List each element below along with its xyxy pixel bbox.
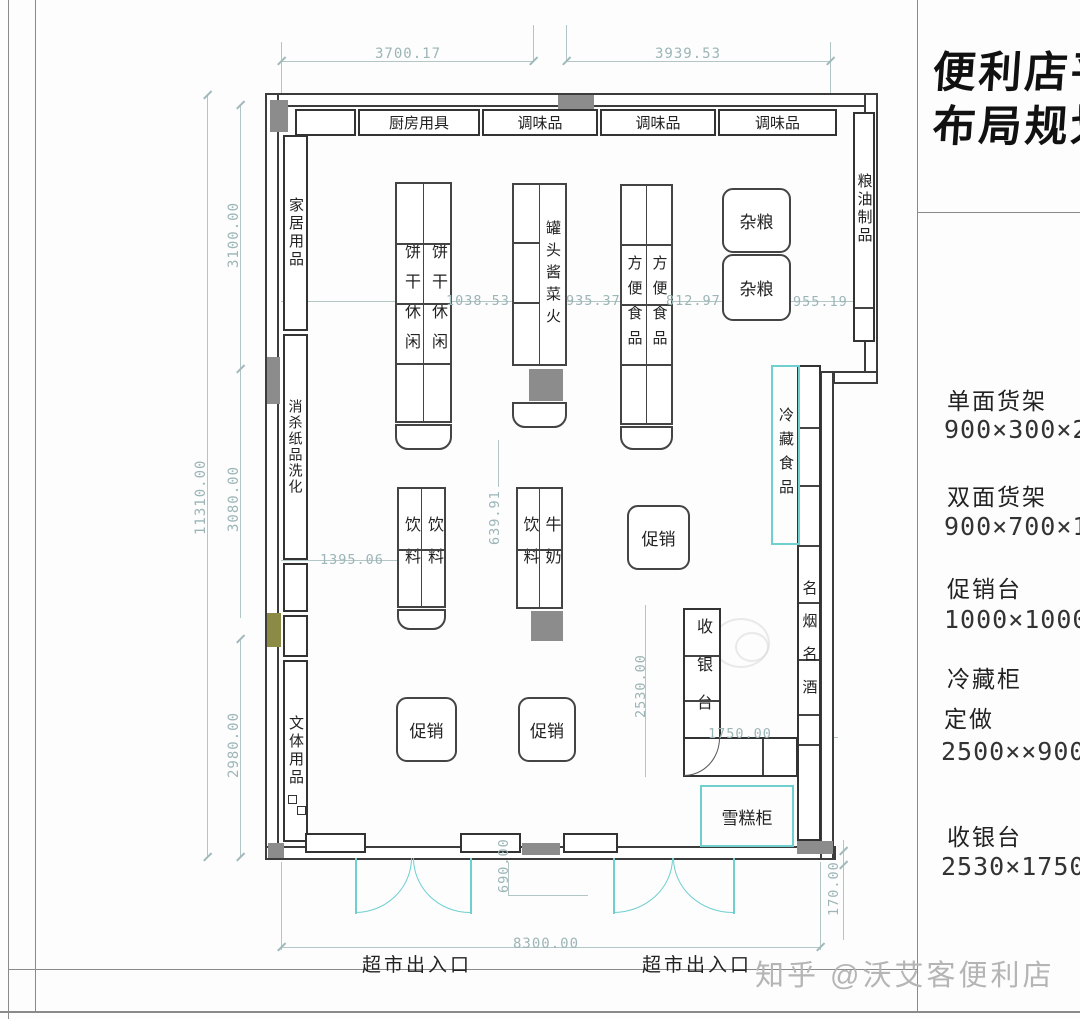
wall-block [558, 95, 594, 109]
gondola-endcap [395, 424, 452, 450]
door-swing-arc [613, 858, 673, 913]
shelf-divider [762, 739, 764, 775]
bottom-cabinet [305, 833, 366, 853]
shelf-label: 罐头酱菜火 [545, 220, 560, 330]
gondola-canned: 罐头酱菜火 [512, 183, 567, 366]
legend-item-note: 定做 [944, 700, 994, 734]
zone-ice-cream: 雪糕柜 [700, 785, 794, 847]
shelf-divider [685, 655, 719, 657]
shelf-label: 粮油制品 [857, 173, 872, 245]
top-shelf-condiments-3: 调味品 [718, 109, 837, 136]
gondola-column: 饮料 [421, 489, 444, 606]
shelf-household: 家居用品 [283, 135, 308, 331]
watermark-logo [735, 632, 769, 662]
top-shelf-condiments-1: 调味品 [482, 109, 598, 136]
top-shelf-condiments-2: 调味品 [600, 109, 716, 136]
shelf-empty [283, 563, 308, 612]
top-shelf-empty [295, 109, 356, 136]
dim-ext [281, 862, 282, 950]
legend-item-size: 900×300×20 [944, 415, 1080, 444]
shelf-divider [799, 427, 819, 429]
shelf-divider [397, 303, 450, 305]
shelf-divider [399, 549, 444, 551]
legend-item-size: 900×700×16 [944, 512, 1080, 541]
shelf-label: 厨房用具 [389, 112, 449, 133]
shelf-label: 冷藏食品 [778, 407, 793, 503]
dim-ext [281, 42, 282, 97]
shelf-divider [799, 485, 819, 487]
shelf-divider [622, 364, 671, 366]
table-grains-1: 杂粮 [722, 188, 791, 253]
wall-block [268, 843, 284, 858]
cashier-label: 收银台 [694, 618, 710, 732]
gondola-endcap [512, 402, 567, 428]
dim-left-seg3: 2980.00 [226, 712, 242, 778]
table-promo-3: 促销 [627, 505, 690, 570]
shelf-divider [622, 244, 671, 246]
shelf-empty [283, 615, 308, 657]
legend-item-name: 双面货架 [947, 478, 1047, 512]
dim-aisle4: 955.19 [793, 294, 848, 310]
shelf-divider [799, 744, 819, 746]
wall-step [833, 371, 878, 384]
shelf-divider [514, 242, 540, 244]
table-label: 促销 [530, 717, 564, 742]
dim-left-seg2: 3080.00 [226, 466, 242, 532]
bottom-cabinet [563, 833, 618, 853]
dim-cashier-width: 1750.00 [708, 726, 772, 742]
sheet-border-bottom [0, 1011, 1080, 1013]
shelf-divider [397, 363, 450, 365]
dim-cashier-depth: 2530.00 [633, 654, 649, 718]
dim-bottom-width: 8300.00 [513, 936, 579, 952]
dim-right-step: 170.00 [826, 861, 842, 916]
table-label: 杂粮 [740, 208, 774, 233]
dim-ext [820, 862, 821, 950]
shelf-label: 消杀纸品洗化 [289, 399, 303, 495]
panel-title-line1: 便利店平 [931, 38, 1080, 100]
dim-aisle2: 935.37 [566, 293, 621, 309]
dim-aisle3: 812.97 [666, 293, 721, 309]
floor-plan-sheet: 厨房用具 调味品 调味品 调味品 粮油制品 家居用品 消杀纸品洗化 文体用品 饼… [0, 0, 1080, 1019]
panel-divider [917, 0, 918, 1013]
door-swing-arc [413, 858, 470, 913]
dim-line-639 [498, 440, 499, 487]
wall-block [797, 841, 833, 854]
dim-top-right: 3939.53 [655, 46, 721, 62]
gondola-block [531, 611, 563, 641]
dim-ext [830, 42, 831, 97]
door-swing-arc [355, 858, 412, 913]
shelf-divider [855, 307, 873, 309]
dim-line-step [843, 840, 844, 940]
door-stop [297, 806, 306, 815]
shelf-cleaning-paper: 消杀纸品洗化 [283, 334, 308, 560]
entrance-label-right: 超市出入口 [642, 950, 752, 977]
table-grains-2: 杂粮 [722, 254, 791, 321]
watermark-text: 知乎 @沃艾客便利店 [755, 952, 1055, 994]
dim-top-left: 3700.17 [375, 46, 441, 62]
zone-cold-food: 冷藏食品 [771, 365, 800, 545]
dim-aisle1: 1038.53 [446, 293, 510, 309]
shelf-label: 调味品 [517, 112, 562, 133]
gondola-endcap [620, 426, 673, 450]
door-leaf [733, 858, 735, 914]
shelf-divider [799, 545, 819, 547]
shelf-divider [514, 302, 540, 304]
shelf-label: 家居用品 [288, 197, 303, 269]
gondola-biscuits: 饼干休闲 饼干休闲 [395, 182, 452, 423]
dim-ext [566, 25, 567, 62]
dim-left-total: 11310.00 [193, 460, 209, 535]
cashier-counter-vertical: 收银台 [683, 608, 721, 741]
shelf-divider [622, 304, 671, 306]
gondola-column: 饮料 [399, 489, 421, 606]
gondola-drinks-milk: 饮料 牛奶 [516, 487, 563, 609]
gondola-endcap [397, 609, 446, 630]
shelf-label: 雪糕柜 [722, 804, 773, 829]
shelf-divider [518, 549, 561, 551]
top-shelf-kitchenware: 厨房用具 [358, 109, 480, 136]
wall-right-lower [820, 371, 834, 860]
gondola-column: 罐头酱菜火 [539, 185, 565, 364]
dim-aisle5: 1395.06 [320, 552, 384, 568]
dim-aisle6: 639.91 [487, 490, 503, 545]
sheet-border-left-outer [8, 0, 9, 1019]
table-label: 促销 [410, 717, 444, 742]
dim-line-door-h [508, 895, 588, 896]
table-promo-1: 促销 [396, 697, 457, 762]
wall-block-olive [267, 613, 281, 647]
gondola-drinks: 饮料 饮料 [397, 487, 446, 608]
panel-title-line2: 布局规划 [931, 92, 1080, 154]
panel-title-divider [917, 212, 1080, 213]
shelf-grain-oil: 粮油制品 [853, 112, 875, 342]
shelf-divider [397, 243, 450, 245]
legend-item-name: 单面货架 [947, 382, 1047, 416]
shelf-label: 牛奶 [543, 516, 559, 580]
wall-block [267, 357, 280, 404]
table-label: 杂粮 [740, 275, 774, 300]
gondola-column: 饮料 [518, 489, 539, 607]
legend-item-name: 冷藏柜 [947, 660, 1022, 694]
door-swing-arc [673, 858, 733, 913]
shelf-label: 饮料 [521, 516, 537, 580]
door-leaf [470, 858, 472, 914]
shelf-label: 名烟名酒 [802, 580, 817, 712]
gondola-column: 牛奶 [539, 489, 561, 607]
shelf-label: 饮料 [425, 516, 441, 580]
sheet-border-left-inner [35, 0, 36, 1013]
legend-item-size: 2500××900× [941, 737, 1080, 766]
wall-left [265, 93, 279, 860]
door-stop [288, 795, 297, 804]
dim-door-offset: 690.00 [496, 838, 512, 893]
shelf-label: 饮料 [402, 516, 418, 580]
legend-item-size: 1000×1000×8 [944, 605, 1080, 634]
wall-block [522, 843, 560, 855]
shelf-label: 调味品 [635, 112, 680, 133]
entrance-label-left: 超市出入口 [362, 950, 472, 977]
legend-item-size: 2530×1750×8 [941, 852, 1080, 881]
gondola-block [529, 369, 563, 401]
shelf-divider [685, 700, 719, 702]
wall-block [270, 100, 288, 132]
shelf-label: 文体用品 [288, 715, 303, 787]
table-promo-2: 促销 [518, 697, 576, 762]
dim-left-seg1: 3100.00 [226, 202, 242, 268]
dim-ext [533, 25, 534, 62]
gondola-column [514, 185, 539, 364]
shelf-label: 调味品 [755, 112, 800, 133]
shelf-tobacco-liquor: 名烟名酒 [797, 548, 821, 744]
legend-item-name: 收银台 [947, 818, 1022, 852]
legend-item-name: 促销台 [947, 570, 1022, 604]
table-label: 促销 [642, 525, 676, 550]
